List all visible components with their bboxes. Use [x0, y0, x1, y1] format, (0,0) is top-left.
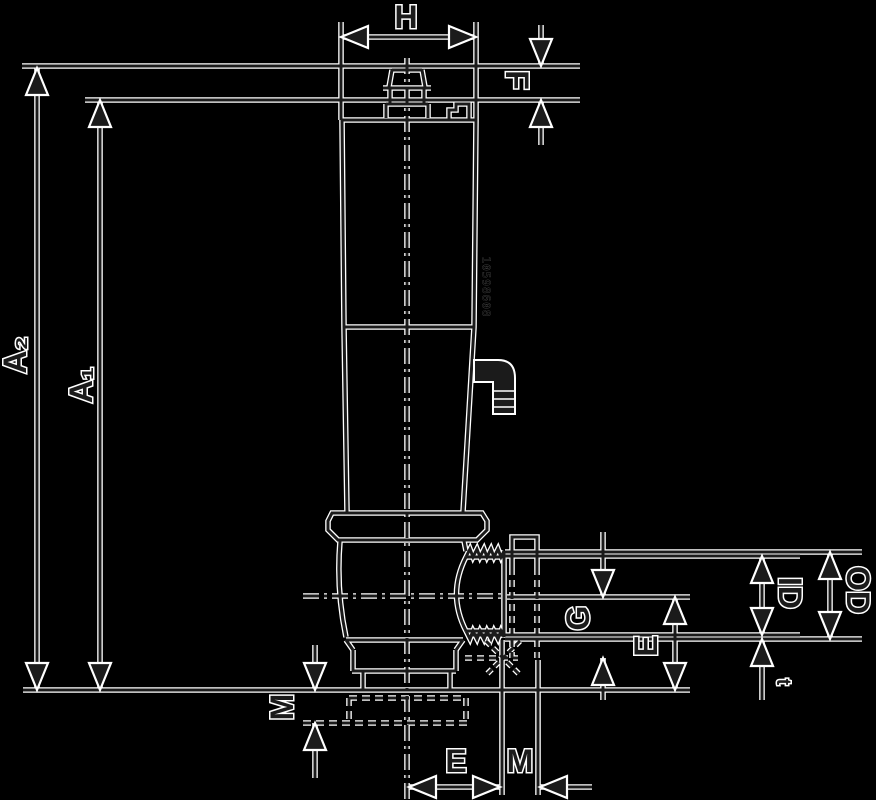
dimension-arrowhead [751, 639, 773, 666]
dim-label-m-left: M [264, 694, 300, 721]
dim-label-e-bottom: E [445, 743, 466, 779]
line-halo-layer [22, 22, 862, 800]
dimension-arrowhead [530, 100, 552, 127]
dimension-arrowhead [664, 663, 686, 690]
dimension-arrowhead [819, 552, 841, 579]
dimension-labels-layer: H F A₂ A₁ M G E ID OD t E M 10598608 [0, 0, 876, 779]
dimension-arrowhead [473, 776, 500, 798]
dim-label-od: OD [840, 566, 876, 614]
dimension-arrowhead [409, 776, 436, 798]
dimension-arrowhead [449, 26, 476, 48]
drawing-canvas: H F A₂ A₁ M G E ID OD t E M 10598608 [0, 0, 876, 800]
technical-drawing: H F A₂ A₁ M G E ID OD t E M 10598608 [0, 0, 876, 800]
dim-label-t: t [772, 679, 794, 686]
dim-label-id: ID [772, 577, 808, 609]
dimension-arrowhead [592, 570, 614, 597]
dimension-arrowhead [89, 100, 111, 127]
dim-label-a2: A₂ [0, 336, 33, 373]
dimension-arrowhead [304, 663, 326, 690]
dimension-arrowhead [341, 26, 368, 48]
dimension-arrowhead [592, 658, 614, 685]
dimension-arrowhead [26, 68, 48, 95]
dimension-arrowhead [540, 776, 567, 798]
linework-layer [22, 22, 862, 800]
dimension-arrowhead [89, 663, 111, 690]
dimension-arrowhead [304, 723, 326, 750]
dim-label-f: F [499, 70, 535, 90]
body-part-number-marking: 10598608 [480, 257, 493, 318]
dim-label-a1: A₁ [63, 367, 99, 403]
dimension-arrows-layer [26, 26, 841, 798]
dim-label-e-right: E [628, 635, 664, 656]
side-elbow-fitting-glyph [474, 360, 515, 414]
dimension-arrowhead [530, 39, 552, 66]
dimension-arrowhead [751, 556, 773, 583]
dimension-arrowhead [664, 597, 686, 624]
dimension-arrowhead [819, 612, 841, 639]
dimension-arrowhead [26, 663, 48, 690]
dim-label-h: H [394, 0, 417, 35]
dim-label-g: G [560, 606, 596, 631]
dimension-arrowhead [751, 608, 773, 635]
dim-label-m-bottom: M [507, 743, 534, 779]
